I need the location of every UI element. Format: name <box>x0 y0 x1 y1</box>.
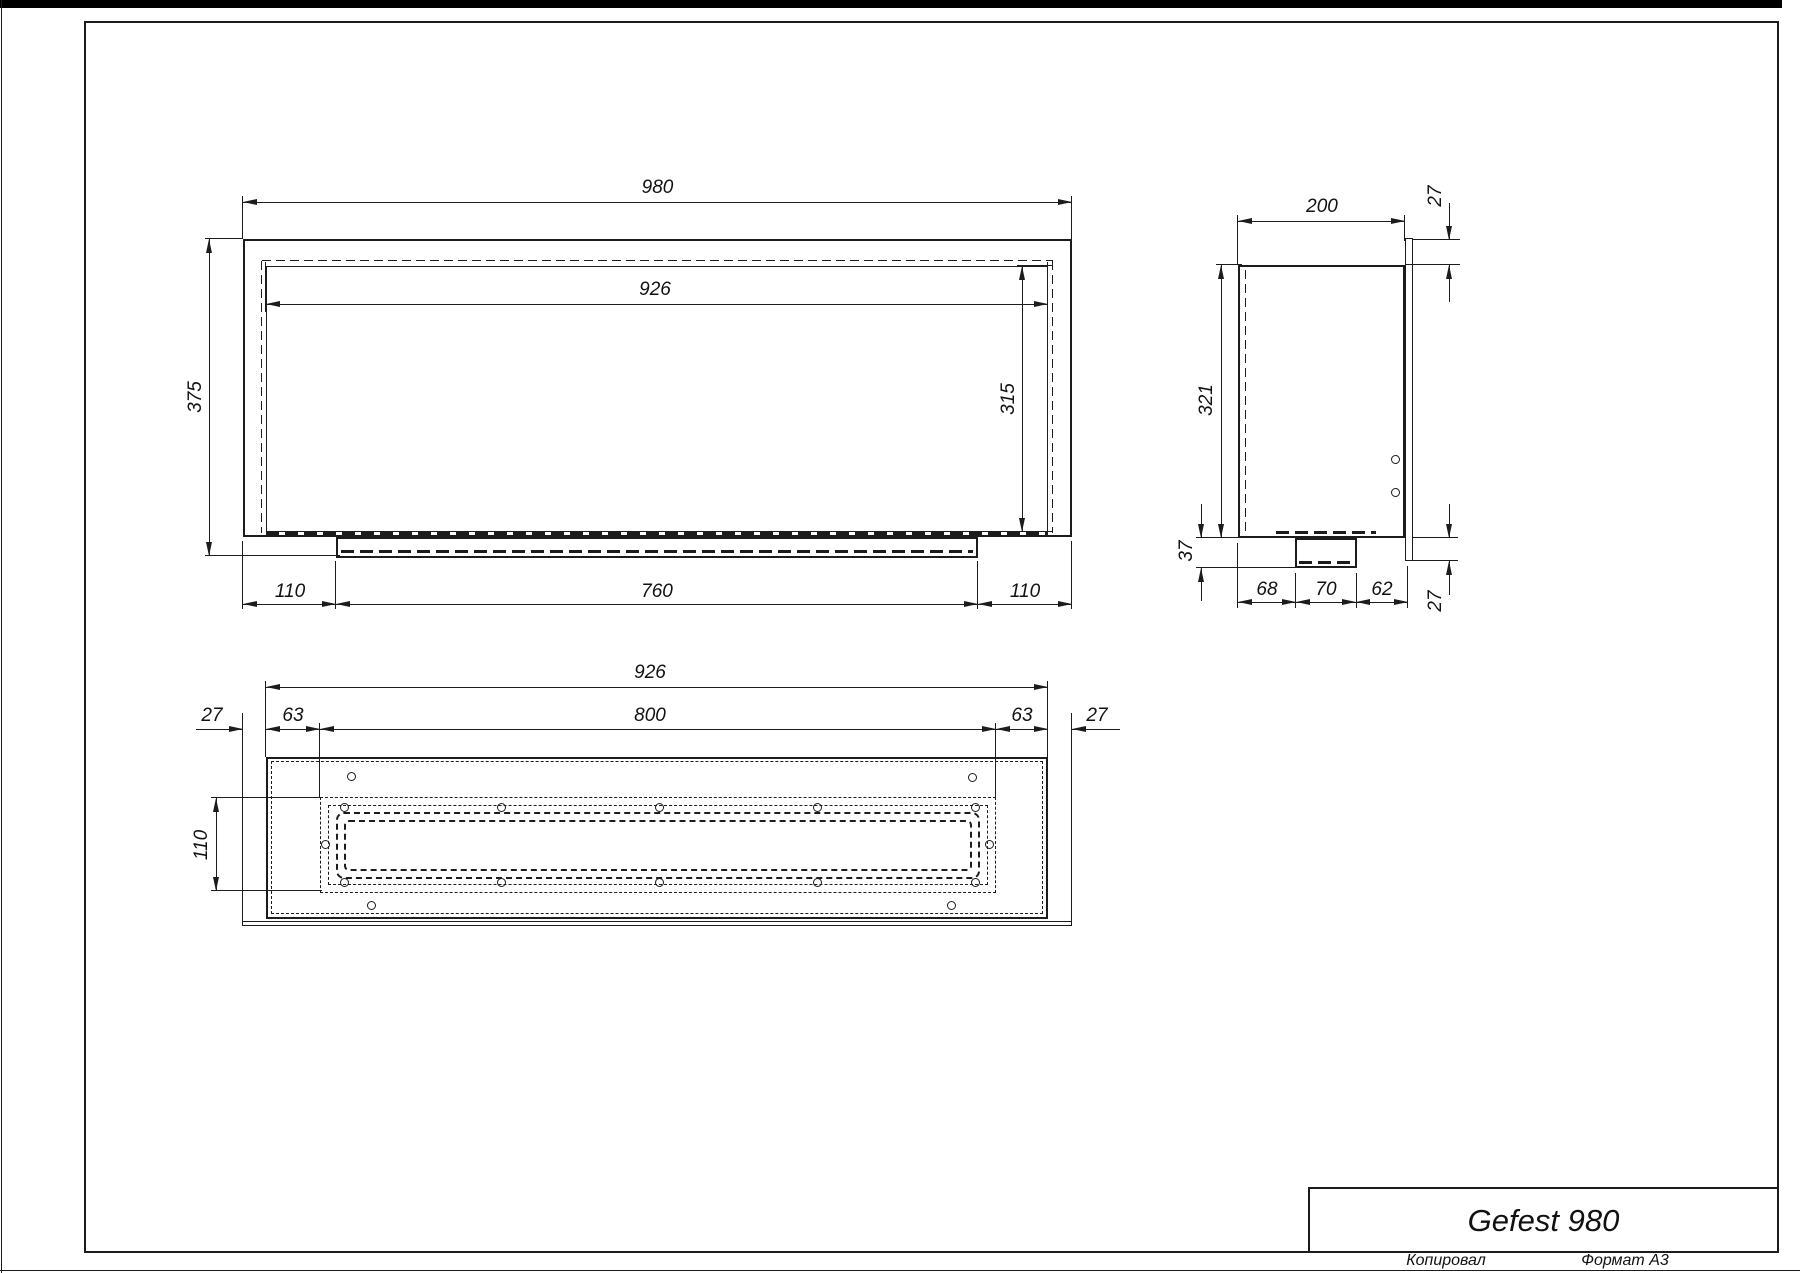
copied-label: Копировал <box>1386 1252 1506 1270</box>
format-label: Формат А3 <box>1560 1252 1690 1270</box>
drawing-title: Gefest 980 <box>1308 1203 1779 1239</box>
drawing-sheet: 980 926 375 315 <box>0 0 1800 1273</box>
title-block: Gefest 980 Копировал Формат А3 <box>0 0 1800 1273</box>
